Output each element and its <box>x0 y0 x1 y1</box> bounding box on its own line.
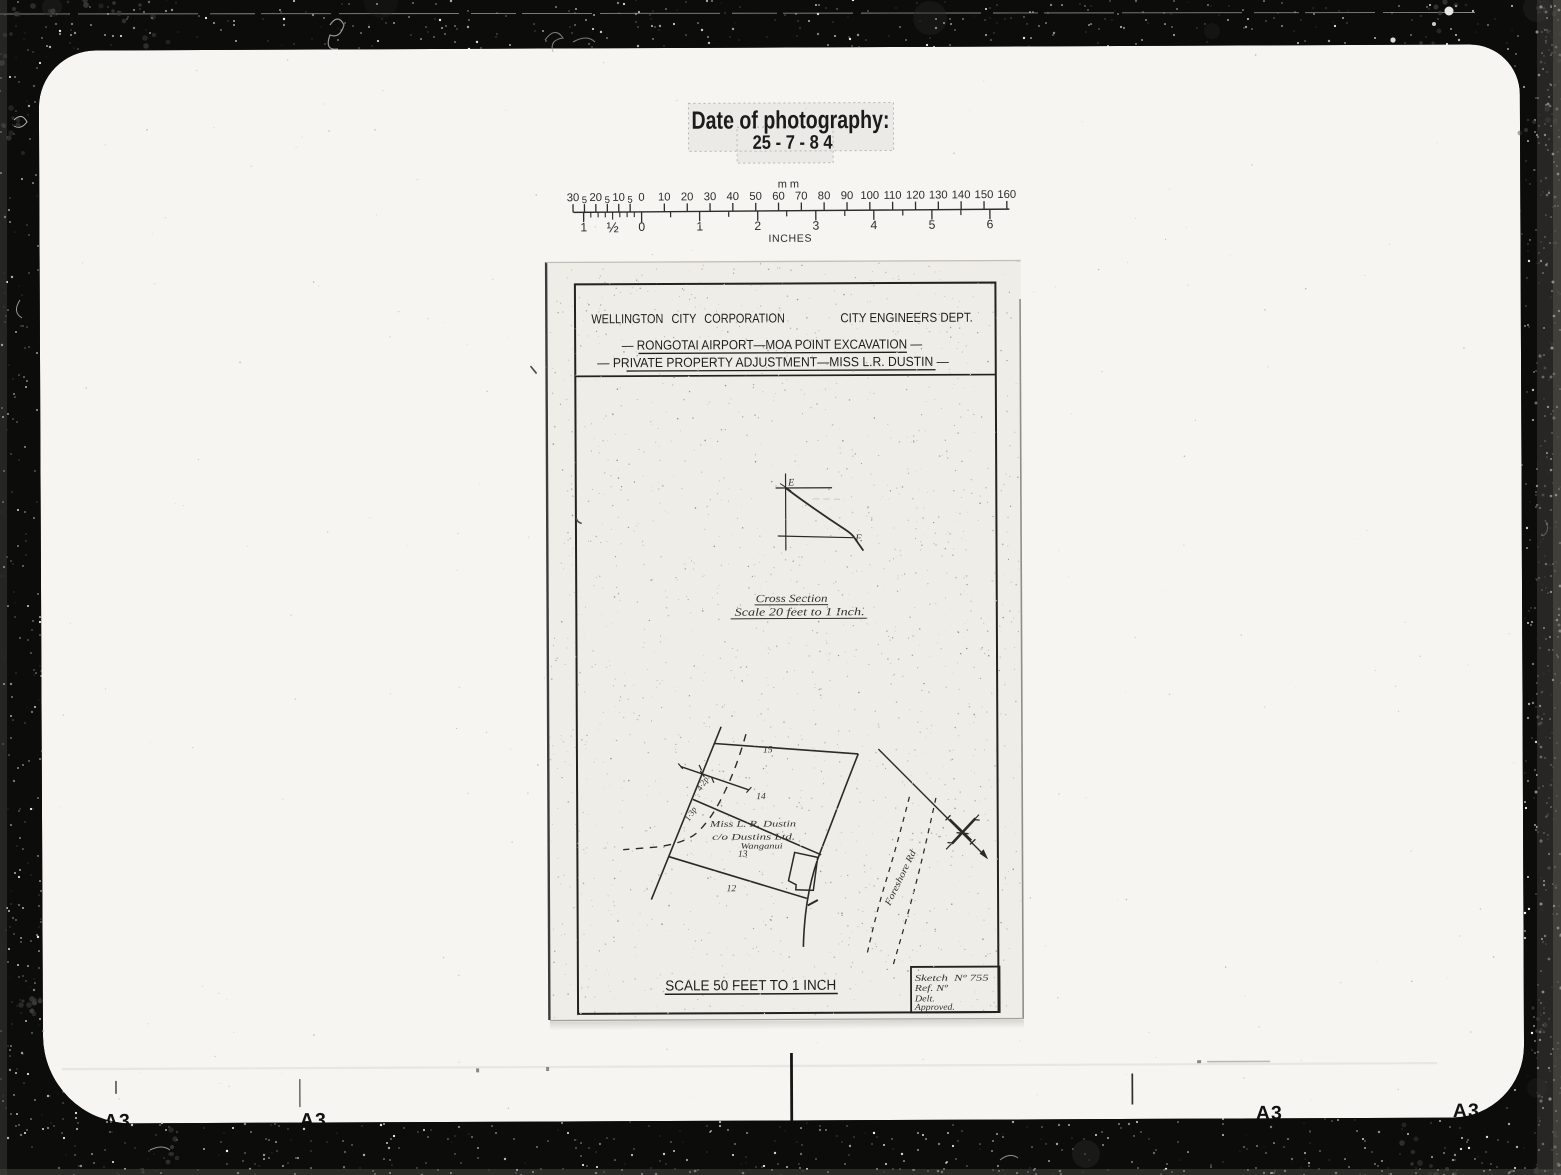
svg-text:Sketch Nº 755: Sketch Nº 755 <box>915 973 990 983</box>
svg-text:15: 15 <box>763 746 773 756</box>
svg-text:20: 20 <box>681 191 694 203</box>
svg-text:130: 130 <box>929 189 948 201</box>
svg-text:CITY ENGINEERS DEPT.: CITY ENGINEERS DEPT. <box>840 310 973 326</box>
svg-text:110: 110 <box>884 190 902 202</box>
svg-text:60: 60 <box>772 191 785 203</box>
svg-text:c/o Dustins Ltd.: c/o Dustins Ltd. <box>712 831 795 841</box>
svg-text:1: 1 <box>696 219 703 233</box>
svg-text:SCALE 50 FEET TO 1 INCH: SCALE 50 FEET TO 1 INCH <box>665 978 836 995</box>
svg-text:6: 6 <box>987 217 994 231</box>
svg-text:Date of photography:: Date of photography: <box>691 106 889 135</box>
svg-text:WELLINGTON CITY CORPORATION: WELLINGTON CITY CORPORATION <box>591 310 785 326</box>
svg-text:½: ½ <box>607 220 619 236</box>
svg-text:5: 5 <box>582 195 587 206</box>
svg-text:70: 70 <box>795 190 808 202</box>
svg-text:4: 4 <box>870 218 877 232</box>
svg-text:150: 150 <box>974 189 993 201</box>
svg-text:13: 13 <box>738 850 748 860</box>
svg-text:10: 10 <box>612 192 625 204</box>
svg-text:Approved.: Approved. <box>914 1002 955 1012</box>
svg-text:140: 140 <box>952 189 971 201</box>
svg-text:25 - 7 - 8 4: 25 - 7 - 8 4 <box>753 132 833 154</box>
svg-text:50: 50 <box>749 191 762 203</box>
svg-text:3: 3 <box>812 219 819 233</box>
svg-text:Miss L. R. Dustin: Miss L. R. Dustin <box>709 818 797 828</box>
svg-text:Cross Section: Cross Section <box>756 593 829 605</box>
svg-text:20: 20 <box>589 192 602 204</box>
svg-text:30: 30 <box>704 191 717 203</box>
svg-text:1: 1 <box>580 220 587 234</box>
svg-text:— PRIVATE PROPERTY ADJUSTMENT—: — PRIVATE PROPERTY ADJUSTMENT—MISS L.R. … <box>597 354 949 371</box>
svg-text:80: 80 <box>818 190 831 202</box>
svg-text:F.: F. <box>854 533 862 544</box>
svg-text:160: 160 <box>997 189 1016 201</box>
svg-text:100: 100 <box>860 190 879 202</box>
svg-text:30: 30 <box>567 192 580 204</box>
svg-text:90: 90 <box>841 190 854 202</box>
svg-text:mm: mm <box>778 178 802 190</box>
svg-text:Wanganui: Wanganui <box>741 841 784 850</box>
svg-text:5: 5 <box>627 195 632 206</box>
svg-text:14: 14 <box>756 792 766 802</box>
svg-text:12: 12 <box>727 884 737 894</box>
svg-text:0: 0 <box>638 220 645 234</box>
svg-text:0: 0 <box>638 192 644 204</box>
svg-text:INCHES: INCHES <box>768 233 812 245</box>
svg-text:120: 120 <box>906 190 925 202</box>
svg-text:40: 40 <box>726 191 739 203</box>
svg-text:Scale 20 feet to 1 Inch.: Scale 20 feet to 1 Inch. <box>735 606 865 619</box>
svg-text:— RONGOTAI AIRPORT—MOA POINT E: — RONGOTAI AIRPORT—MOA POINT EXCAVATION … <box>622 336 923 352</box>
svg-text:E: E <box>787 477 794 488</box>
svg-text:5: 5 <box>929 218 936 232</box>
svg-text:5: 5 <box>605 195 610 206</box>
svg-text:2: 2 <box>754 219 761 233</box>
svg-text:10: 10 <box>658 191 671 203</box>
svg-text:Ref. Nº: Ref. Nº <box>913 983 948 993</box>
